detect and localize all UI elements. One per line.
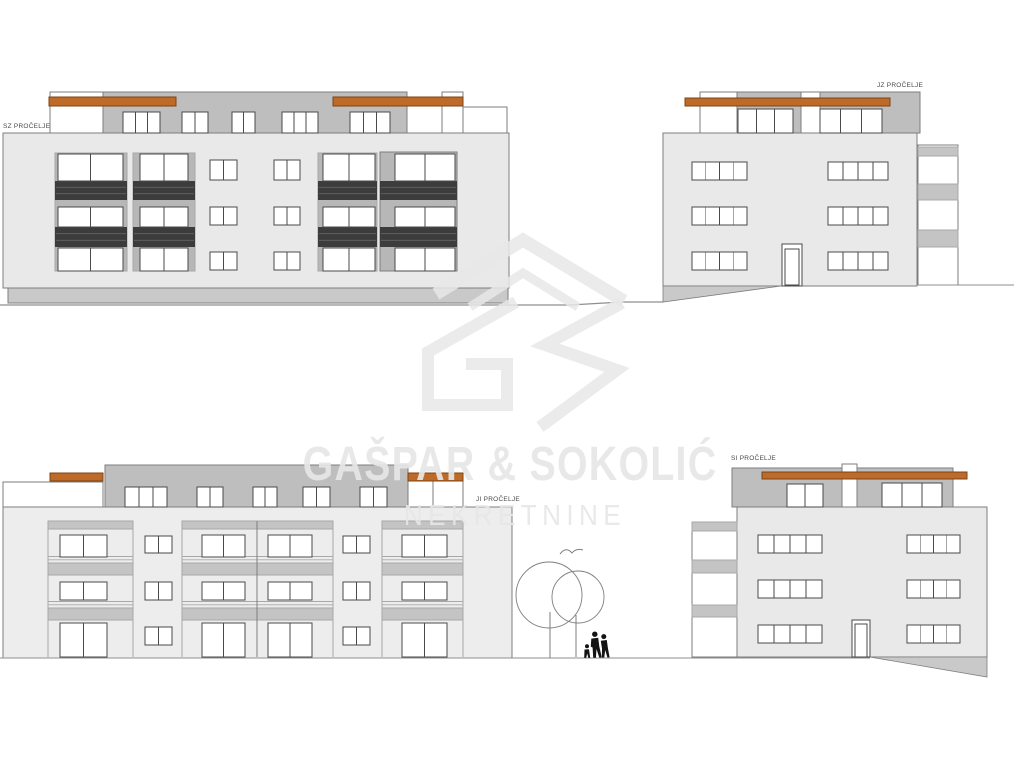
person-silhouette	[585, 644, 589, 648]
person-silhouette	[601, 634, 606, 639]
balcony-slab	[48, 563, 133, 575]
window	[123, 112, 160, 133]
balcony-slab	[257, 608, 333, 620]
side-balcony	[918, 145, 958, 285]
terrain-wedge	[663, 286, 781, 302]
attic-divider-cap	[842, 464, 857, 472]
architectural-elevation-sheet: SZ PROČELJE JZ PROČELJE JI PROČELJE SI P…	[0, 0, 1024, 768]
window	[882, 483, 942, 507]
watermark-letter-s-icon	[540, 303, 622, 427]
balcony-slab	[692, 522, 737, 531]
balcony-railing	[318, 181, 377, 200]
balcony-railing	[133, 227, 195, 247]
balcony-slab	[382, 608, 463, 620]
roof-fascia	[333, 97, 463, 106]
person-silhouette	[592, 632, 597, 637]
window	[350, 112, 390, 133]
watermark-letter-g-icon	[428, 302, 516, 405]
balcony-fascia	[48, 521, 133, 529]
roof-fascia	[685, 98, 890, 106]
plinth	[8, 288, 508, 303]
person-silhouette	[601, 640, 610, 658]
window	[738, 109, 793, 133]
terrain-wedge	[870, 657, 987, 677]
balcony-slab	[692, 560, 737, 573]
balcony-railing	[380, 227, 457, 247]
watermark-company-name: GAŠPAR & SOKOLIĆ	[303, 437, 718, 492]
facade-label-sz: SZ PROČELJE	[3, 123, 50, 130]
balcony-fascia	[182, 521, 333, 529]
roof-fascia	[50, 473, 103, 481]
person-silhouette	[584, 649, 590, 658]
balcony-railing	[318, 227, 377, 247]
balcony-railing	[133, 181, 195, 200]
balcony-slab	[182, 608, 257, 620]
balcony-slab	[257, 563, 333, 575]
balcony-railing	[380, 181, 457, 200]
side-balcony	[692, 522, 737, 657]
window	[282, 112, 318, 133]
door-panel	[855, 624, 867, 657]
window	[125, 487, 167, 507]
balcony-railing	[55, 227, 127, 247]
balcony-slab	[918, 230, 958, 247]
elevation-drawing	[0, 0, 1024, 768]
person-silhouette	[591, 638, 602, 658]
roof-fascia	[49, 97, 176, 106]
balcony-slab	[692, 605, 737, 617]
bird	[560, 549, 583, 554]
door-panel	[785, 249, 799, 285]
balcony-slab	[918, 184, 958, 200]
balcony-slab	[48, 608, 133, 620]
roof-fascia	[762, 472, 967, 479]
balcony-slab	[918, 147, 958, 156]
balcony-railing	[55, 181, 127, 200]
facade-label-jz: JZ PROČELJE	[877, 82, 923, 89]
facade-label-si: SI PROČELJE	[731, 455, 776, 462]
balcony-slab	[382, 563, 463, 575]
watermark-tagline: NEKRETNINE	[404, 500, 626, 533]
attic-block	[3, 482, 103, 507]
window	[820, 109, 882, 133]
attic-fascia	[463, 107, 507, 133]
balcony-slab	[182, 563, 257, 575]
